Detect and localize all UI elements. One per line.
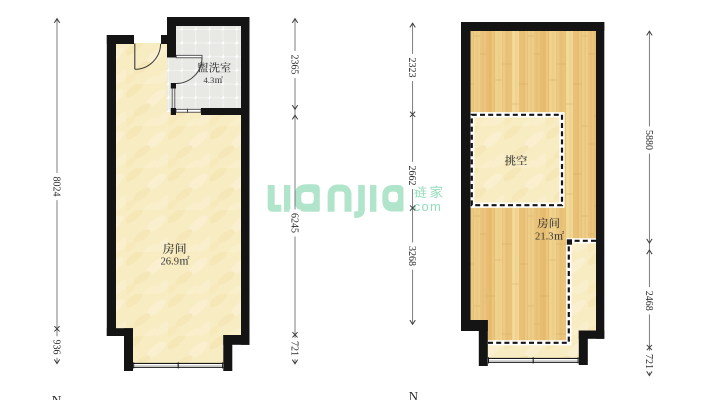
- svg-text:N: N: [52, 393, 62, 400]
- svg-text:2468: 2468: [643, 291, 654, 311]
- svg-text:721: 721: [288, 341, 299, 356]
- svg-text:721: 721: [643, 354, 654, 369]
- svg-text:5880: 5880: [643, 130, 654, 150]
- svg-text:N: N: [409, 389, 418, 400]
- svg-text:936: 936: [50, 340, 61, 355]
- svg-text:21.3: 21.3: [535, 232, 554, 243]
- svg-text:2323: 2323: [406, 58, 417, 78]
- svg-text:8024: 8024: [50, 177, 61, 197]
- svg-text:26.9: 26.9: [160, 257, 179, 268]
- svg-text:2365: 2365: [288, 55, 299, 75]
- svg-text:3268: 3268: [406, 246, 417, 266]
- svg-text:2662: 2662: [406, 166, 417, 186]
- svg-text:4.3: 4.3: [204, 75, 215, 85]
- svg-text:6245: 6245: [288, 213, 299, 233]
